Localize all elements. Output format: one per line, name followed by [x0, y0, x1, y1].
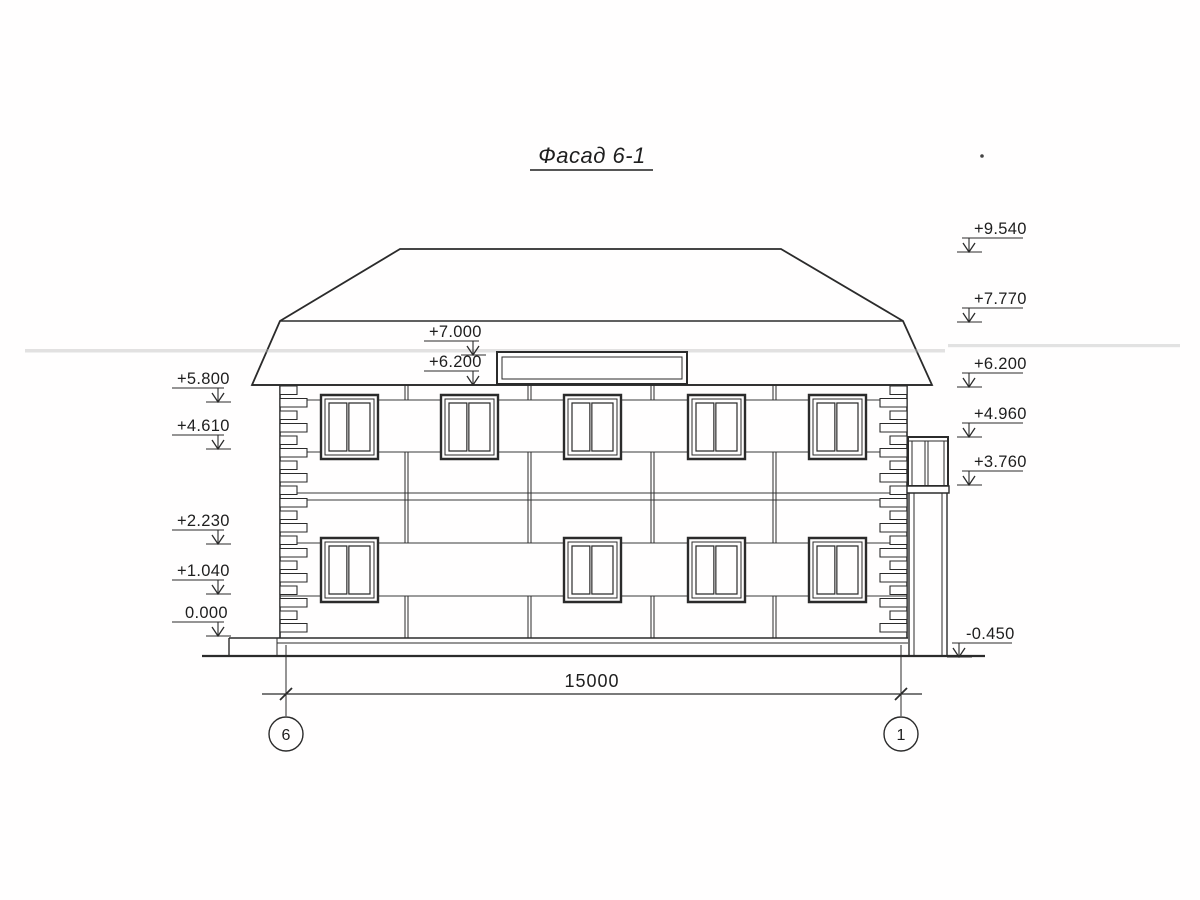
facade-window: [441, 395, 498, 459]
quoin: [890, 411, 907, 420]
quoin: [280, 386, 297, 395]
quoin: [280, 599, 307, 608]
quoin: [880, 524, 907, 533]
dimension-group: 15000 6 1: [262, 645, 922, 751]
elevation-mark-label: +6.200: [429, 353, 482, 371]
facade-window: [564, 395, 621, 459]
quoin: [280, 424, 307, 433]
elevation-mark: +4.610: [172, 417, 231, 449]
scan-speck: [980, 154, 984, 158]
quoin: [890, 386, 907, 395]
elevation-mark-label: +6.200: [974, 355, 1027, 373]
quoin: [890, 611, 907, 620]
elevation-mark-label: +7.000: [429, 323, 482, 341]
quoin: [280, 524, 307, 533]
quoin: [280, 461, 297, 470]
quoin: [880, 549, 907, 558]
quoin: [890, 461, 907, 470]
dimension-label: 15000: [564, 671, 619, 691]
page-title: Фасад 6-1: [538, 143, 646, 168]
quoin: [280, 436, 297, 445]
quoin: [890, 586, 907, 595]
quoin: [880, 399, 907, 408]
quoin: [890, 511, 907, 520]
quoin: [880, 499, 907, 508]
quoin: [890, 436, 907, 445]
elevation-mark-label: +4.960: [974, 405, 1027, 423]
quoin: [880, 424, 907, 433]
elevation-mark-label: +3.760: [974, 453, 1027, 471]
facade-windows: [321, 395, 866, 602]
quoin: [280, 499, 307, 508]
axis-label: 6: [282, 727, 291, 744]
plinth: [229, 638, 908, 656]
scan-artifact-streak: [948, 344, 1180, 347]
facade-window: [564, 538, 621, 602]
axis-label: 1: [897, 727, 906, 744]
elevation-mark: +3.760: [957, 453, 1027, 485]
quoin: [280, 486, 297, 495]
scan-artifact-streak: [25, 349, 945, 353]
quoin: [280, 561, 297, 570]
elevation-mark: +7.770: [957, 290, 1027, 322]
quoin: [280, 449, 307, 458]
facade-window: [688, 395, 745, 459]
quoin: [880, 474, 907, 483]
quoin: [280, 399, 307, 408]
quoin: [880, 624, 907, 633]
elevation-mark: +2.230: [172, 512, 231, 544]
elevation-mark-label: +7.770: [974, 290, 1027, 308]
elevation-mark: +5.800: [172, 370, 231, 402]
elevation-mark: 0.000: [172, 604, 231, 636]
quoin: [280, 536, 297, 545]
elevation-mark: +1.040: [172, 562, 231, 594]
elevation-mark-label: +5.800: [177, 370, 230, 388]
elevation-mark-label: +9.540: [974, 220, 1027, 238]
stair-shaft: [907, 437, 949, 656]
elevation-mark: +4.960: [957, 405, 1027, 437]
facade-window: [809, 395, 866, 459]
facade-window: [688, 538, 745, 602]
elevation-mark-label: 0.000: [185, 604, 228, 622]
quoin: [280, 411, 297, 420]
quoin: [880, 449, 907, 458]
quoin: [280, 549, 307, 558]
facade-window: [321, 538, 378, 602]
quoin: [280, 611, 297, 620]
quoin: [280, 574, 307, 583]
quoin: [280, 624, 307, 633]
elevation-mark-label: +1.040: [177, 562, 230, 580]
quoin: [280, 474, 307, 483]
quoin: [280, 511, 297, 520]
elevation-mark: +6.200: [957, 355, 1027, 387]
elevation-mark: -0.450: [947, 625, 1015, 657]
facade-window: [321, 395, 378, 459]
quoin: [890, 561, 907, 570]
quoin: [880, 574, 907, 583]
quoin: [890, 536, 907, 545]
elevation-mark-label: +4.610: [177, 417, 230, 435]
elevation-mark-label: -0.450: [966, 625, 1015, 643]
shaft-sill-band: [907, 486, 949, 493]
quoin: [280, 586, 297, 595]
elevation-mark-label: +2.230: [177, 512, 230, 530]
quoin: [890, 486, 907, 495]
quoin: [880, 599, 907, 608]
facade-drawing-sheet: 15000 6 1 +9.540+7.770+6.200+4.960+3.760…: [0, 0, 1200, 900]
facade-window: [809, 538, 866, 602]
facade-elevation-drawing: 15000 6 1 +9.540+7.770+6.200+4.960+3.760…: [0, 0, 1200, 900]
elevation-mark: +9.540: [957, 220, 1027, 252]
